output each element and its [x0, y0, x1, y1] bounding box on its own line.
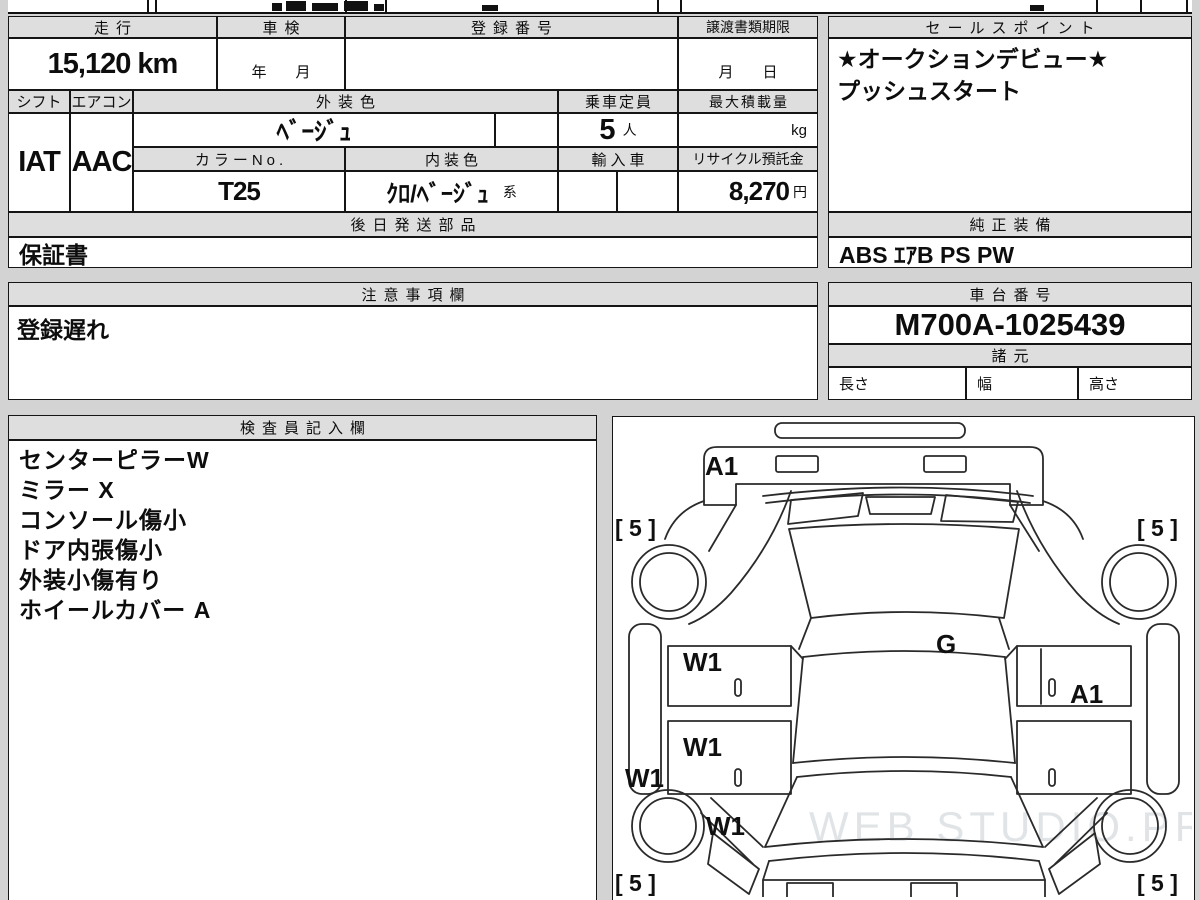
interior-color-text: ｸﾛ/ﾍﾞｰｼﾞｭ [386, 174, 489, 209]
tire-score-front-right: [ 5 ] [1137, 515, 1178, 541]
tire-score-front-left: [ 5 ] [615, 515, 656, 541]
chassis-value: M700A-1025439 [828, 306, 1192, 344]
equipment-value: ABS ｴｱB PS PW [828, 237, 1192, 268]
inspector-line: 外装小傷有り [19, 565, 163, 595]
capacity-header: 乗車定員 [558, 90, 678, 113]
recycle-unit: 円 [793, 182, 807, 202]
car-top-view-diagram: WEB STUDIO.PRO [613, 417, 1192, 897]
right-sill-shape [1147, 624, 1179, 794]
aircon-header: エアコン [70, 90, 133, 113]
mileage-value: 15,120 km [8, 38, 217, 90]
exterior-color-extra [495, 113, 558, 147]
color-no-header: カラーNo. [133, 147, 345, 171]
tire-score-rear-right: [ 5 ] [1137, 870, 1178, 896]
sales-point-line2: プッシュスタート [837, 75, 1021, 107]
max-load-header: 最大積載量 [678, 90, 818, 113]
recycle-number: 8,270 [729, 176, 789, 207]
interior-color-header: 内装色 [345, 147, 558, 171]
inspector-line: ホイールカバー A [19, 595, 211, 625]
capacity-unit: 人 [623, 120, 637, 140]
damage-label-rear-wheel: W1 [706, 811, 745, 841]
transfer-docs-header: 譲渡書類期限 [678, 16, 818, 38]
damage-diagram-panel: WEB STUDIO.PRO [612, 416, 1195, 900]
equipment-header: 純正装備 [828, 212, 1192, 237]
later-parts-header: 後日発送部品 [8, 212, 818, 237]
recycle-header: リサイクル預託金 [678, 147, 818, 171]
front-left-wheel [632, 545, 706, 619]
import-value-2 [617, 171, 678, 212]
damage-label-sill: W1 [625, 763, 664, 793]
damage-label-rear-door: W1 [683, 732, 722, 762]
damage-label-front-door: W1 [683, 647, 722, 677]
shaken-value: 年 月 [217, 38, 345, 90]
import-header: 輸入車 [558, 147, 678, 171]
rear-right-door-shape [1017, 721, 1131, 794]
wiper-right-shape [941, 495, 1018, 522]
shift-value: IAT [8, 113, 70, 212]
damage-label-roof: G [936, 629, 956, 659]
door-handle-shape [735, 679, 741, 696]
recycle-value: 8,270 円 [678, 171, 818, 212]
interior-color-suffix: 系 [503, 182, 517, 202]
spec-length: 長さ [828, 367, 966, 400]
rear-left-wheel [632, 790, 704, 862]
door-handle-shape [1049, 769, 1055, 786]
cutoff-text-fragment [1030, 5, 1044, 11]
auction-sheet: 走行 車検 登録番号 譲渡書類期限 15,120 km 年 月 月 日 シフト … [0, 0, 1200, 900]
notes-text: 登録遅れ [17, 311, 109, 345]
cutoff-text-fragment [272, 3, 282, 11]
aircon-value: AAC [70, 113, 133, 212]
notes-header: 注意事項欄 [8, 282, 818, 306]
tire-score-rear-left: [ 5 ] [615, 870, 656, 896]
spec-width: 幅 [966, 367, 1078, 400]
shift-header: シフト [8, 90, 70, 113]
spec-height: 高さ [1078, 367, 1192, 400]
interior-color-value: ｸﾛ/ﾍﾞｰｼﾞｭ 系 [345, 171, 558, 212]
shaken-header: 車検 [217, 16, 345, 38]
sales-point-content: ★オークションデビュー★ プッシュスタート [828, 38, 1192, 212]
cutoff-text-fragment [286, 1, 306, 11]
capacity-number: 5 [599, 114, 614, 147]
notes-content: 登録遅れ [8, 306, 818, 400]
cutoff-text-fragment [482, 5, 498, 11]
taillight-right-shape [911, 883, 957, 897]
sales-point-header: セールスポイント [828, 16, 1192, 38]
transfer-docs-value: 月 日 [678, 38, 818, 90]
door-handle-shape [1049, 679, 1055, 696]
sales-point-line1: ★オークションデビュー★ [837, 43, 1108, 75]
exterior-color-value: ﾍﾞｰｼﾞｭ [133, 113, 495, 147]
taillight-left-shape [787, 883, 833, 897]
inspector-line: ミラー X [19, 475, 115, 505]
inspector-line: ドア内張傷小 [19, 535, 163, 565]
cutoff-text-fragment [374, 4, 384, 11]
front-right-wheel [1102, 545, 1176, 619]
cutoff-row [8, 0, 1192, 14]
inspector-line: コンソール傷小 [19, 505, 187, 535]
cutoff-text-fragment [312, 3, 338, 11]
damage-label-right-door: A1 [1070, 679, 1103, 709]
capacity-value: 5 人 [558, 113, 678, 147]
mileage-header: 走行 [8, 16, 217, 38]
later-parts-value: 保証書 [8, 237, 818, 268]
inspector-header: 検査員記入欄 [8, 415, 597, 440]
registration-header: 登録番号 [345, 16, 678, 38]
cutoff-text-fragment [344, 1, 368, 11]
max-load-value: kg [678, 113, 818, 147]
chassis-header: 車台番号 [828, 282, 1192, 306]
inspector-content: センターピラーW ミラー X コンソール傷小 ドア内張傷小 外装小傷有り ホイー… [8, 440, 597, 900]
inspector-line: センターピラーW [19, 445, 210, 475]
specs-header: 諸元 [828, 344, 1192, 367]
headlight-left-shape [776, 456, 818, 472]
windshield-shape [789, 524, 1019, 618]
color-no-value: T25 [133, 171, 345, 212]
headlight-right-shape [924, 456, 966, 472]
damage-label-front: A1 [705, 451, 738, 481]
door-handle-shape [735, 769, 741, 786]
front-bumper-shape [775, 423, 965, 438]
registration-value [345, 38, 678, 90]
import-value-1 [558, 171, 617, 212]
exterior-color-header: 外装色 [133, 90, 558, 113]
